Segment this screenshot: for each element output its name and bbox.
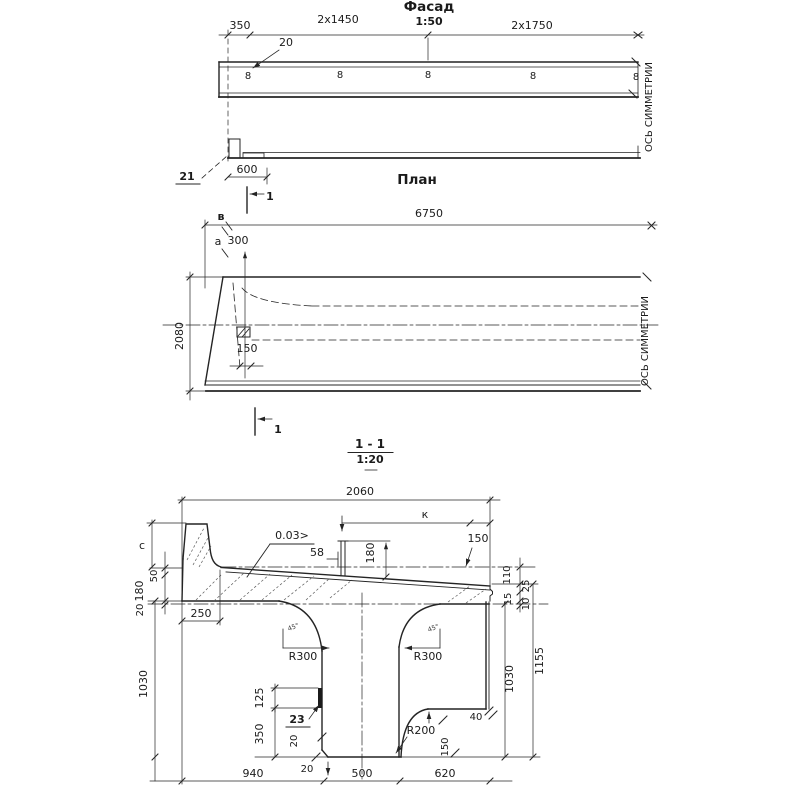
facade-view: Фасад 1:50 350 2x1450 2x1750: [176, 0, 655, 184]
plan-dim-6750-line: [202, 220, 657, 288]
section-dim-1030-left: 1030: [137, 670, 150, 698]
facade-dim-2x1750: 2x1750: [511, 19, 553, 32]
loop-mark: 8: [633, 72, 639, 83]
section-r200: R200: [407, 724, 436, 737]
facade-dim-2x1450: 2x1450: [317, 13, 359, 26]
plan-embedded-plate: [237, 327, 250, 337]
section-dim-k-line: [342, 516, 493, 531]
section-slope-label: 0.03>: [275, 529, 309, 542]
section-dim-350: 350: [253, 724, 266, 745]
section-cut-mark-lower: 1: [255, 408, 282, 436]
facade-support-structure: [228, 139, 640, 158]
section-dim-620: 620: [435, 767, 456, 780]
section-dim-20-b: 20: [301, 764, 314, 775]
loop-mark: 8: [425, 70, 431, 81]
section-angle-left: 45°: [287, 621, 301, 632]
plan-label-v-tick: [226, 222, 232, 230]
section-hatching: [187, 528, 486, 603]
plan-dim-6750: 6750: [415, 207, 443, 220]
section-dim-110: 110: [502, 565, 513, 584]
section-dim-1030-left-line: [148, 598, 182, 781]
section-post: [338, 541, 348, 576]
section-scale: 1:20: [356, 453, 384, 466]
section-dim-150-step: 150: [440, 737, 451, 756]
facade-title: Фасад: [404, 0, 455, 15]
section-dim-250: 250: [191, 607, 212, 620]
section-dim-500: 500: [352, 767, 373, 780]
plan-beam-outline: [205, 273, 651, 391]
section-angle-right: 45°: [427, 622, 441, 633]
section-title: 1 - 1: [355, 437, 385, 451]
loop-mark: 8: [337, 70, 343, 81]
facade-loop-marks: 8 8 8 8 8: [245, 70, 639, 83]
plan-dim-150: 150: [237, 342, 258, 355]
section-dim-125-line: [271, 684, 318, 712]
section-dim-20-left: 20: [135, 604, 146, 617]
section-dim-c-line: [147, 520, 186, 570]
section-dim-150-step-tick2: [439, 716, 447, 724]
plan-dim-300: 300: [228, 234, 249, 247]
section-dim-1030-right: 1030: [503, 665, 516, 693]
section-reference-lines: [148, 567, 548, 779]
plan-dim-150-line: [230, 363, 263, 369]
section-dim-125: 125: [253, 688, 266, 709]
facade-symmetry-label: ОСЬ СИММЕТРИИ: [644, 62, 655, 152]
plan-title: План: [397, 172, 437, 188]
plan-label-a: а: [215, 235, 222, 248]
section-mark-number: 1: [274, 423, 282, 436]
section-dim-2060-line: [178, 497, 500, 784]
plan-view: 1 План 6750 в а 300: [163, 172, 658, 436]
section-r300-left: R300: [289, 650, 318, 663]
plan-label-a-tick: [222, 249, 228, 257]
section-dim-10: 10: [521, 598, 532, 611]
section-dim-40-tick2: [489, 711, 497, 719]
section-dim-940: 940: [243, 767, 264, 780]
section-dim-150-top: 150: [468, 532, 489, 545]
plan-hidden-lines: [233, 283, 640, 368]
section-dim-40: 40: [470, 712, 483, 723]
plan-label-v: в: [218, 210, 225, 223]
section-cut-mark-upper: 1: [247, 187, 274, 213]
section-dim-58-line: [327, 552, 338, 566]
plan-dim-2080: 2080: [173, 322, 186, 350]
facade-scale: 1:50: [415, 15, 443, 28]
loop-mark: 8: [245, 71, 251, 82]
section-dim-20-a: 20: [289, 735, 300, 748]
section-dim-180-left: 180: [133, 581, 146, 602]
section-dim-1155: 1155: [533, 647, 546, 675]
section-bottom-dim-line: [150, 778, 512, 784]
section-slope-leader: [247, 544, 270, 577]
section-r300-right: R300: [414, 650, 443, 663]
section-dim-k: к: [422, 508, 429, 521]
section-dim-c: с: [139, 539, 145, 552]
plan-symmetry-label: ОСЬ СИММЕТРИИ: [640, 296, 651, 386]
section-dim-180-post: 180: [364, 543, 377, 564]
technical-drawing: Фасад 1:50 350 2x1450 2x1750: [0, 0, 800, 800]
section-dim-50: 50: [149, 570, 160, 583]
section-plate-callout: 23: [289, 713, 304, 726]
section-mark-number: 1: [266, 190, 274, 203]
facade-callout-20-leader: [253, 50, 279, 68]
section-dim-15: 15: [503, 593, 514, 606]
facade-callout-21-leader: [202, 156, 227, 178]
section-view: 1 - 1 1:20 2060 к 150 0.03> 58: [133, 437, 548, 784]
section-dim-58: 58: [310, 546, 324, 559]
section-plate-callout-leader: [309, 705, 319, 719]
loop-mark: 8: [530, 71, 536, 82]
facade-dim-600: 600: [237, 163, 258, 176]
section-dim-150-step-tick: [451, 749, 459, 757]
section-dim-150-leader: [466, 548, 472, 566]
facade-callout-21: 21: [179, 170, 194, 183]
section-dim-2060: 2060: [346, 485, 374, 498]
facade-dim-350: 350: [230, 19, 251, 32]
facade-callout-20: 20: [279, 36, 293, 49]
drawing-sheet: Фасад 1:50 350 2x1450 2x1750: [0, 0, 800, 800]
